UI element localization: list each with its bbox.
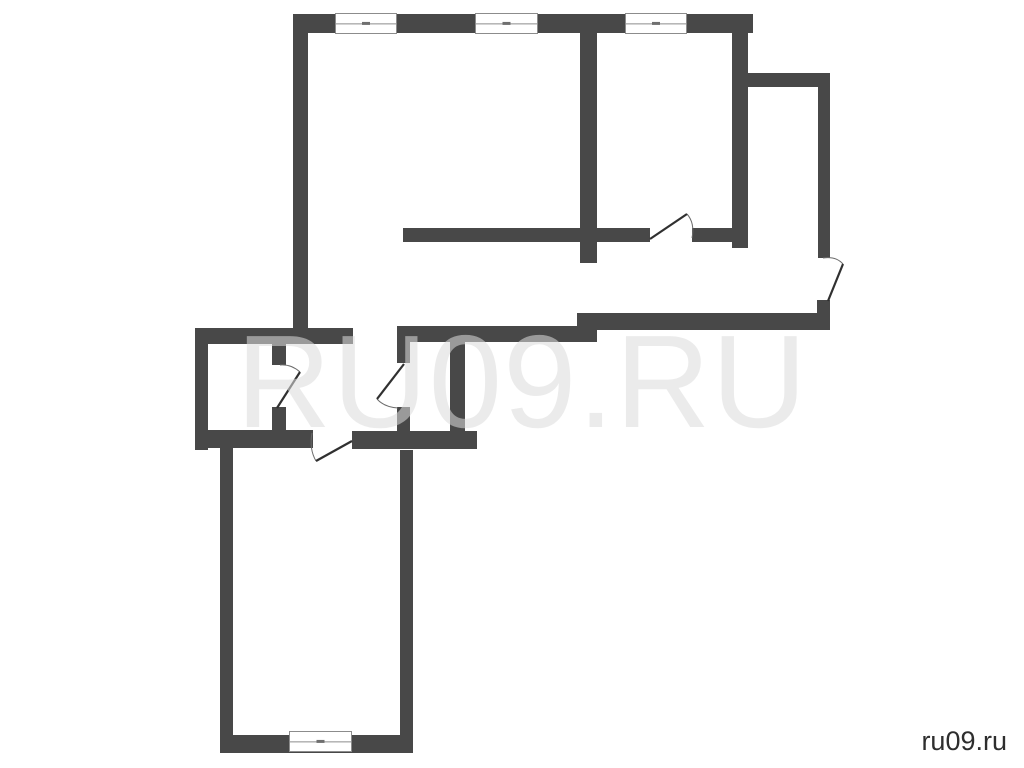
watermark-text: RU09.RU	[236, 316, 808, 448]
door-entrance-leaf	[828, 264, 843, 301]
floorplan-page: RU09.RU ru09.ru	[0, 0, 1024, 768]
left-exterior-wall	[293, 33, 308, 330]
window-bottom-tick	[317, 740, 325, 743]
window-top-2-tick	[503, 22, 511, 25]
window-top-3-tick	[652, 22, 660, 25]
door-room-right-swing-arc	[687, 214, 693, 238]
door-room-right-leaf	[650, 214, 687, 239]
entry-nook-top-wall	[745, 73, 830, 87]
window-top-1-tick	[362, 22, 370, 25]
bottom-room-right-wall	[400, 450, 413, 753]
door-entrance-swing-arc	[823, 258, 843, 264]
right-exterior-wall-stub	[817, 300, 830, 315]
site-credit-text: ru09.ru	[921, 726, 1007, 757]
hall-partition-left	[403, 228, 650, 242]
bottom-room-left-wall	[220, 448, 233, 753]
room-divider-right	[732, 14, 748, 248]
hall-partition-right	[692, 228, 737, 242]
right-exterior-wall	[818, 87, 830, 258]
